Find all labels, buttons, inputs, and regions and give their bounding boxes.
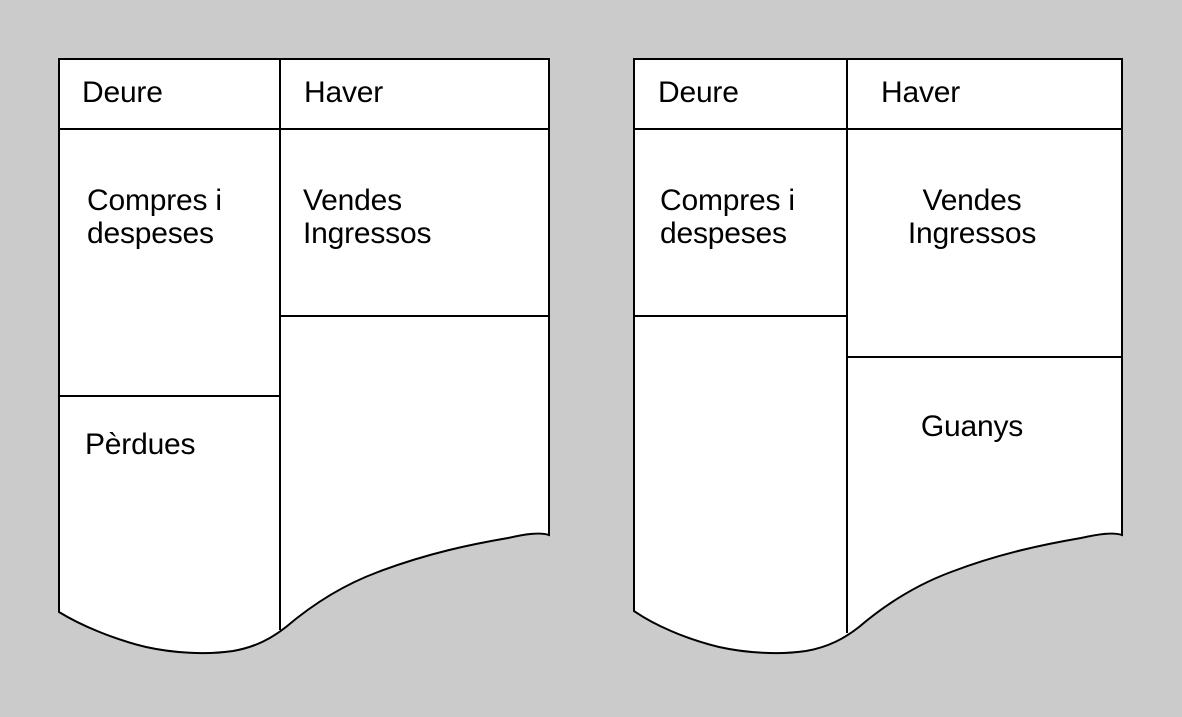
debit-header: Deure <box>658 76 739 109</box>
debit-header: Deure <box>82 76 163 109</box>
debit-entry: Compres i despeses <box>87 184 222 250</box>
sheet-outline <box>59 59 549 653</box>
debit-entry: Compres i despeses <box>660 184 795 250</box>
diagram-canvas: Deure Haver Compres i despeses Vendes In… <box>0 0 1182 717</box>
credit-result-label: Guanys <box>847 410 1097 443</box>
t-account-losses: Deure Haver Compres i despeses Vendes In… <box>58 58 550 698</box>
ledger-sheet-right <box>633 58 1123 698</box>
credit-header: Haver <box>881 76 960 109</box>
credit-header: Haver <box>304 76 383 109</box>
credit-entry: Vendes Ingressos <box>303 184 431 250</box>
credit-entry: Vendes Ingressos <box>847 184 1097 250</box>
debit-result-label: Pèrdues <box>85 428 195 461</box>
ledger-sheet-left <box>58 58 550 698</box>
t-account-gains: Deure Haver Compres i despeses Vendes In… <box>633 58 1123 698</box>
